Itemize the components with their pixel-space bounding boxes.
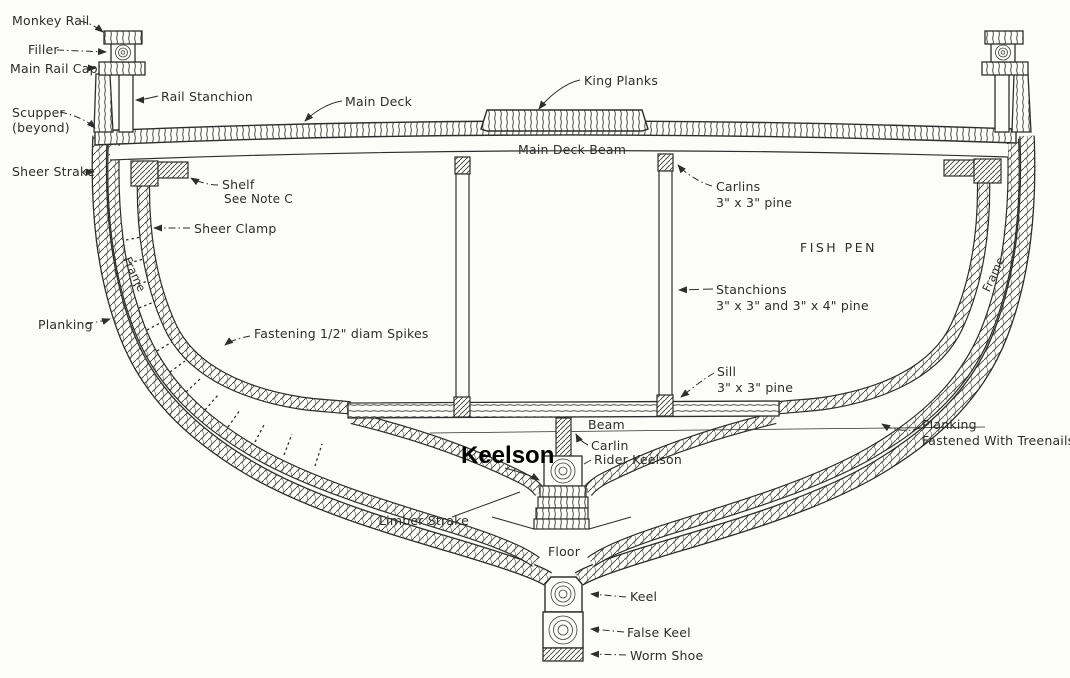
label-shelf-line1: Shelf	[222, 177, 255, 192]
filler-block	[991, 43, 1015, 62]
label-keelson: Keelson	[461, 442, 554, 469]
label-sill-line1: Sill	[717, 364, 736, 379]
label-planking-right-line1: Planking	[922, 417, 977, 432]
label-planking-right-line2: Fastened With Treenails	[922, 433, 1070, 448]
scanned-diagram-page: Monkey Rail Filler Main Rail Cap Rail St…	[0, 0, 1070, 678]
false-keel-block	[543, 612, 583, 648]
rail-stanchion	[995, 74, 1009, 132]
label-main-deck-beam: Main Deck Beam	[518, 142, 626, 157]
fish-pen-stanchion-left	[454, 157, 470, 417]
label-sill-line2: 3" x 3" pine	[717, 380, 793, 395]
label-fastening-spikes: Fastening 1/2" diam Spikes	[254, 326, 429, 341]
monkey-rail	[104, 31, 142, 44]
fish-pen-stanchion-right	[657, 154, 673, 416]
carlin-post	[556, 418, 571, 457]
rail-stanchion	[119, 74, 133, 132]
king-planks	[481, 110, 648, 131]
hull-cross-section-diagram: Monkey Rail Filler Main Rail Cap Rail St…	[0, 0, 1070, 678]
label-carlins-line2: 3" x 3" pine	[716, 195, 792, 210]
label-sheer-clamp: Sheer Clamp	[194, 221, 277, 236]
label-scupper-line2: (beyond)	[12, 120, 70, 135]
label-keel: Keel	[630, 589, 657, 604]
label-false-keel: False Keel	[627, 625, 691, 640]
label-filler: Filler	[28, 42, 59, 57]
label-rail-stanchion: Rail Stanchion	[161, 89, 253, 104]
label-stanchions-line1: Stanchions	[716, 282, 787, 297]
label-scupper-line1: Scupper	[12, 105, 65, 120]
label-stanchions-line2: 3" x 3" and 3" x 4" pine	[716, 298, 869, 313]
monkey-rail	[985, 31, 1023, 44]
label-carlin: Carlin	[591, 438, 629, 453]
label-main-deck: Main Deck	[345, 94, 413, 109]
label-rider-keelson: Rider Keelson	[594, 452, 682, 467]
label-planking-left: Planking	[38, 317, 93, 332]
shelf-left	[131, 161, 188, 186]
label-limber-strake: Limber Strake	[379, 513, 469, 528]
bulwark-planking	[94, 74, 113, 132]
right-ceiling-band	[777, 164, 984, 408]
label-king-planks: King Planks	[584, 73, 658, 88]
keel-block	[545, 577, 582, 612]
label-beam: Beam	[588, 417, 625, 432]
label-carlins-line1: Carlins	[716, 179, 760, 194]
keelson-stack	[534, 486, 589, 529]
right-bulwark	[982, 31, 1031, 132]
main-rail-cap	[99, 62, 145, 75]
keel-assembly	[543, 577, 583, 661]
label-sheer-strake: Sheer Strake	[12, 164, 95, 179]
left-bulwark	[94, 31, 145, 132]
label-monkey-rail: Monkey Rail	[12, 13, 89, 28]
shelf-right	[944, 159, 1001, 183]
main-rail-cap	[982, 62, 1028, 75]
right-planking-band	[579, 136, 1028, 579]
filler-block	[111, 43, 135, 62]
label-worm-shoe: Worm Shoe	[630, 648, 703, 663]
label-fish-pen: FISH PEN	[800, 240, 877, 255]
label-floor: Floor	[548, 544, 581, 559]
label-shelf-line2: See Note C	[224, 192, 293, 206]
left-planking-band	[99, 136, 548, 579]
label-main-rail-cap: Main Rail Cap	[10, 61, 98, 76]
worm-shoe-strip	[543, 648, 583, 661]
bulwark-planking	[1012, 74, 1031, 132]
